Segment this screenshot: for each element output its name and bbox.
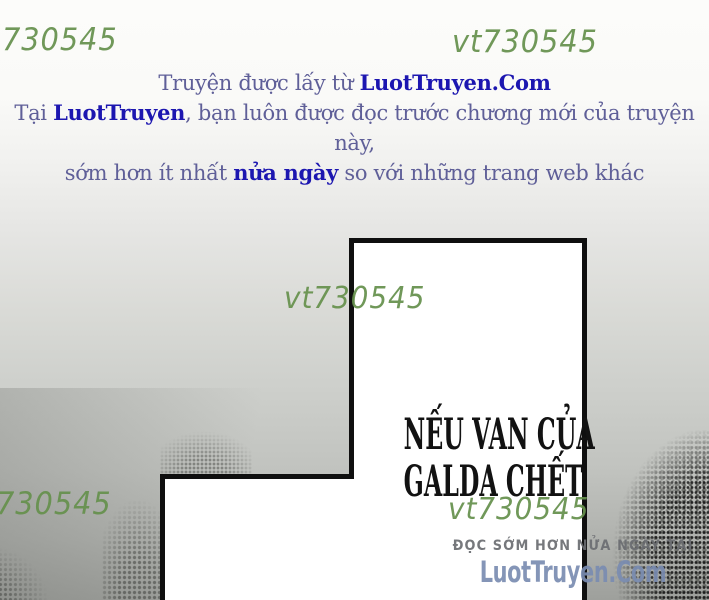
promo-line-1-text: Truyện được lấy từ bbox=[158, 71, 359, 95]
promo-line-2-post: , bạn luôn được đọc trước chương mới của… bbox=[185, 101, 695, 155]
footer-tagline: ĐỌC SỚM HƠN NỬA NGÀY TẠI bbox=[444, 538, 702, 554]
footer-site-name: LuotTruyen.Com bbox=[472, 555, 674, 589]
promo-line-1: Truyện được lấy từ LuotTruyen.Com bbox=[0, 68, 709, 98]
promo-line-2-pre: Tại bbox=[14, 101, 53, 125]
promo-line-3: sớm hơn ít nhất nửa ngày so với những tr… bbox=[0, 158, 709, 188]
comic-page: 730545 vt730545 vt730545 730545 vt730545… bbox=[0, 0, 709, 600]
promo-highlight: nửa ngày bbox=[233, 160, 338, 185]
watermark-middle: vt730545 bbox=[284, 281, 425, 316]
site-brand-name: LuotTruyen.Com bbox=[360, 70, 551, 95]
site-promo-banner: Truyện được lấy từ LuotTruyen.Com Tại Lu… bbox=[0, 68, 709, 188]
watermark-top-left: 730545 bbox=[2, 22, 118, 58]
watermark-top-right: vt730545 bbox=[452, 24, 598, 60]
speech-text-line-1: NẾU VAN CỦA bbox=[404, 412, 533, 459]
speech-text-line-2: GALDA CHẾT bbox=[404, 459, 533, 506]
watermark-bottom-left: 730545 bbox=[0, 486, 112, 522]
speech-bubble: NẾU VAN CỦA GALDA CHẾT bbox=[351, 412, 585, 506]
promo-line-2: Tại LuotTruyen, bạn luôn được đọc trước … bbox=[0, 98, 709, 158]
footer-promo: ĐỌC SỚM HƠN NỬA NGÀY TẠI LuotTruyen.Com bbox=[433, 538, 709, 589]
promo-line-3-pre: sớm hơn ít nhất bbox=[65, 161, 233, 185]
promo-line-3-post: so với những trang web khác bbox=[338, 161, 644, 185]
site-brand-name: LuotTruyen bbox=[53, 100, 185, 125]
